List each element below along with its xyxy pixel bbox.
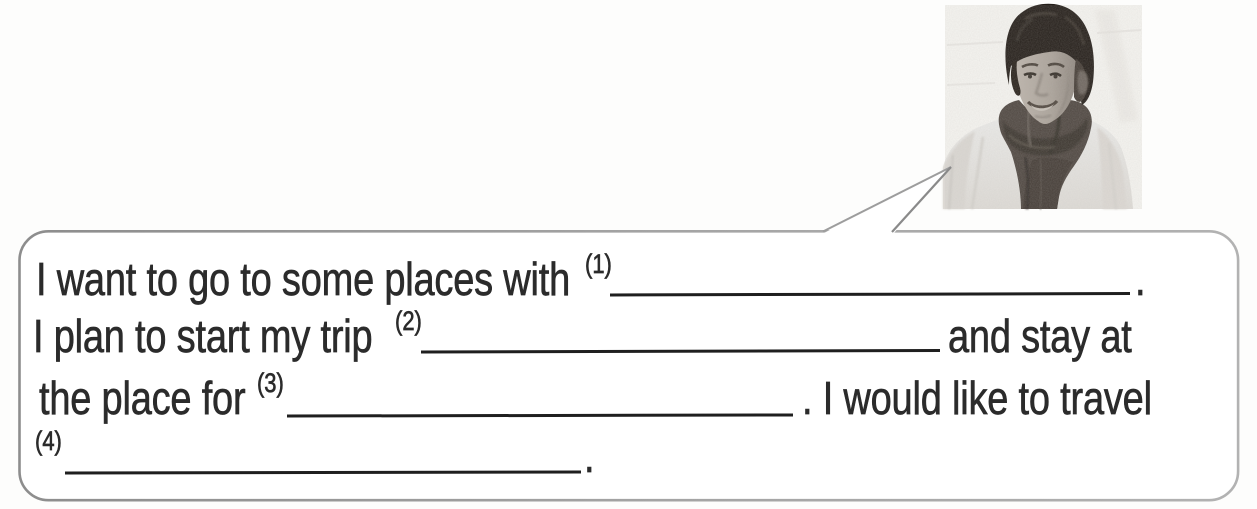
svg-text:(4): (4) xyxy=(35,427,62,456)
svg-text:(1): (1) xyxy=(585,250,612,279)
svg-text:.: . xyxy=(584,431,594,482)
svg-text:(2): (2) xyxy=(395,307,422,336)
svg-text:(3): (3) xyxy=(257,369,284,398)
svg-text:and stay at: and stay at xyxy=(948,311,1132,362)
svg-text:the place for: the place for xyxy=(39,373,246,424)
svg-text:I plan to start my trip: I plan to start my trip xyxy=(33,311,372,362)
svg-text:. I would like to travel: . I would like to travel xyxy=(802,373,1152,424)
svg-text:I want to go to some places wi: I want to go to some places with xyxy=(36,254,570,305)
svg-text:.: . xyxy=(1135,254,1145,305)
